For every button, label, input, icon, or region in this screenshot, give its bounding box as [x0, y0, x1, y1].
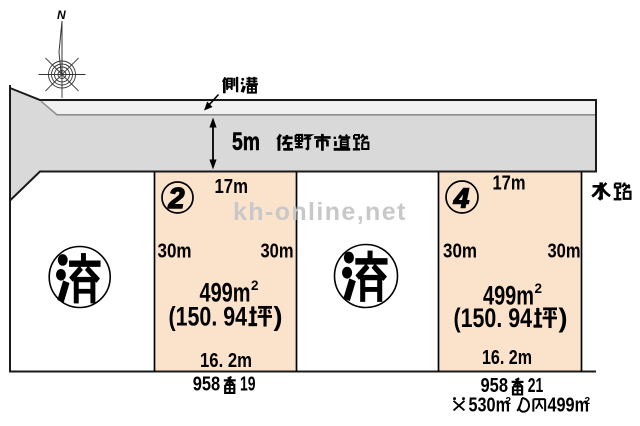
svg-text:2: 2	[167, 183, 184, 215]
svg-text:17m: 17m	[493, 173, 526, 195]
svg-text:21: 21	[528, 375, 544, 397]
svg-text:4: 4	[453, 183, 470, 214]
svg-text:30m: 30m	[261, 241, 294, 263]
svg-text:30m: 30m	[548, 241, 581, 263]
svg-text:30m: 30m	[158, 241, 192, 263]
svg-text:2: 2	[585, 396, 591, 407]
svg-text:958: 958	[193, 374, 221, 396]
svg-text:N: N	[57, 8, 66, 22]
svg-text:2: 2	[251, 278, 259, 293]
svg-text:17m: 17m	[215, 176, 249, 198]
svg-text:2: 2	[506, 396, 512, 407]
svg-text:2: 2	[535, 281, 543, 296]
svg-text:30m: 30m	[443, 241, 477, 263]
svg-text:(150. 94: (150. 94	[169, 302, 248, 332]
svg-text:16. 2m: 16. 2m	[482, 347, 532, 369]
svg-text:kh-online,net: kh-online,net	[233, 198, 407, 226]
svg-text:(150. 94: (150. 94	[454, 303, 533, 333]
svg-text:5m: 5m	[232, 128, 260, 156]
svg-text:19: 19	[240, 374, 256, 396]
svg-text:): )	[274, 302, 283, 332]
svg-text:530m: 530m	[469, 395, 511, 417]
svg-text:16. 2m: 16. 2m	[200, 350, 252, 372]
svg-text:499m: 499m	[548, 395, 590, 417]
svg-text:): )	[559, 303, 568, 333]
